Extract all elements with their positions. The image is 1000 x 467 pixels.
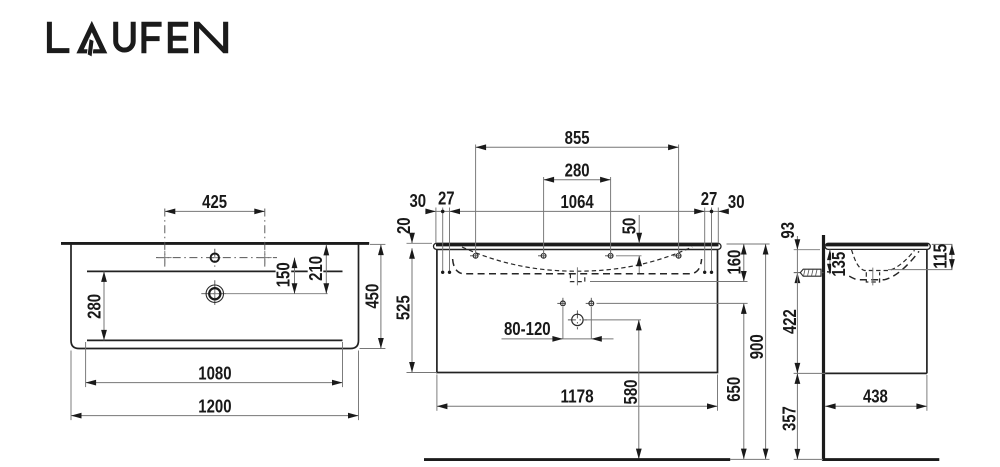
svg-text:30: 30 xyxy=(728,192,745,212)
svg-text:525: 525 xyxy=(394,295,414,320)
svg-text:1200: 1200 xyxy=(198,397,231,417)
svg-text:855: 855 xyxy=(565,128,590,148)
svg-text:1064: 1064 xyxy=(561,192,595,212)
svg-text:438: 438 xyxy=(863,387,888,407)
svg-text:580: 580 xyxy=(621,380,641,405)
svg-text:150: 150 xyxy=(274,262,294,287)
svg-text:210: 210 xyxy=(306,256,326,281)
svg-text:20: 20 xyxy=(394,217,414,234)
svg-text:425: 425 xyxy=(202,192,227,212)
svg-text:280: 280 xyxy=(85,294,105,319)
svg-text:115: 115 xyxy=(931,244,951,269)
svg-text:135: 135 xyxy=(829,252,849,277)
svg-text:450: 450 xyxy=(363,284,383,309)
svg-text:27: 27 xyxy=(438,189,455,209)
svg-text:1080: 1080 xyxy=(198,364,231,384)
svg-text:80-120: 80-120 xyxy=(504,319,551,339)
svg-text:650: 650 xyxy=(724,377,744,402)
svg-text:900: 900 xyxy=(747,334,767,359)
svg-text:1178: 1178 xyxy=(561,387,594,407)
svg-text:27: 27 xyxy=(701,189,718,209)
svg-text:422: 422 xyxy=(780,309,800,334)
svg-text:280: 280 xyxy=(565,161,590,181)
svg-text:93: 93 xyxy=(778,222,798,239)
svg-text:357: 357 xyxy=(780,406,800,431)
svg-text:160: 160 xyxy=(725,250,745,275)
svg-text:50: 50 xyxy=(620,218,640,235)
svg-text:30: 30 xyxy=(410,191,427,211)
